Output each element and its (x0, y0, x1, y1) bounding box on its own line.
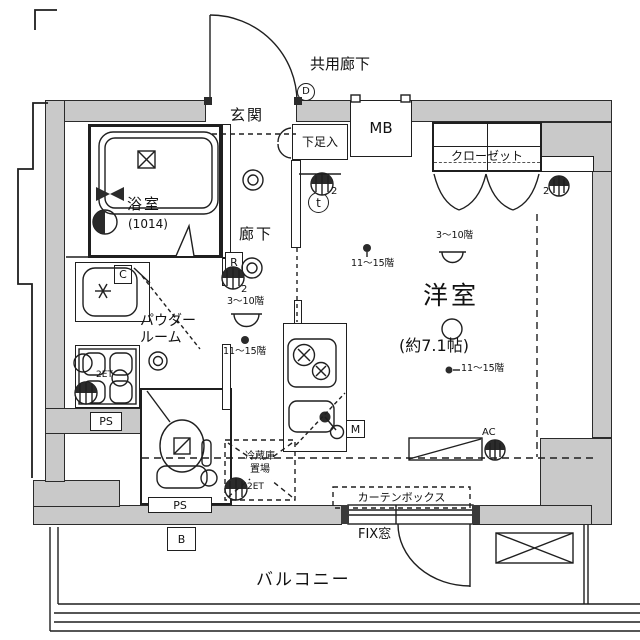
vanity-counter (75, 262, 150, 322)
label-entrance: 玄関 (230, 108, 264, 123)
doorbell-d-mark: D (297, 83, 315, 101)
anno-outlet2-hall: 2 (241, 285, 247, 295)
shoe-cabinet-door-arcs (278, 128, 291, 158)
wall-closet-right (540, 156, 594, 172)
anno-hall-floors-lower: 11〜15階 (223, 347, 266, 357)
label-fridge-2: 置場 (225, 465, 295, 475)
label-balcony: バルコニー (256, 572, 351, 589)
light-dot-hall (241, 336, 249, 344)
entrance-downlight (243, 170, 263, 190)
ac-unit-mark (409, 438, 482, 460)
label-ac: AC (482, 428, 496, 438)
pipe-space-left: PS (90, 412, 122, 431)
light-dot-room-left (363, 244, 371, 257)
label-powder-2: ルーム (140, 331, 182, 345)
label-bathroom-size: (1014) (128, 218, 168, 230)
wall-lamp-hall-icon (231, 314, 262, 327)
label-fridge-1: 冷蔵庫 (225, 452, 295, 462)
hall-downlight (242, 258, 262, 278)
fix-window-frame (341, 505, 480, 524)
exterior-outline (18, 103, 48, 478)
anno-room-floors-left: 11〜15階 (351, 259, 394, 269)
wall-chunk-bottom-left (33, 480, 120, 507)
label-curtain-box: カーテンボックス (333, 492, 470, 503)
floor-plan: クローゼット MB 下足入 R C M PS PS B D t (0, 0, 640, 640)
symbol-c-box: C (114, 265, 132, 284)
label-powder-1: パウダー (140, 314, 196, 328)
entrance-door-swing (204, 15, 302, 105)
label-fix-window: FIX窓 (358, 528, 391, 541)
closet-door-arcs (434, 174, 539, 210)
wall-bottom-right (473, 505, 592, 525)
symbol-b-box: B (167, 527, 196, 551)
meter-box: MB (350, 100, 412, 157)
balcony-door-swing (398, 524, 470, 587)
kitchen-counter (283, 323, 347, 452)
wall-genkan-room (291, 160, 301, 248)
exterior-corner-mark (35, 10, 57, 30)
symbol-r-box: R (225, 252, 243, 272)
closet-label: クローゼット (434, 150, 540, 162)
anno-hall-floors-upper: 3〜10階 (227, 297, 264, 307)
symbol-m-box: M (346, 420, 365, 438)
shoe-cabinet: 下足入 (292, 124, 348, 160)
label-hallway: 廊下 (239, 227, 273, 242)
pipe-space-bottom: PS (148, 497, 212, 513)
wall-top-left (48, 100, 206, 122)
anno-outlet2-entrance: 2 (331, 187, 337, 197)
label-common-corridor: 共用廊下 (310, 57, 370, 72)
closet-divider (487, 124, 488, 170)
tv-terminal-mark: t (308, 192, 329, 213)
anno-outlet2-closet: 2 (543, 187, 549, 197)
outlet-icon-closet (549, 176, 569, 196)
anno-room-floors-lower: 11〜15階 (461, 364, 504, 374)
label-main-room-size: (約7.1帖) (399, 338, 469, 354)
toilet-room (140, 388, 232, 505)
wall-lamp-room-icon (439, 252, 466, 263)
anno-2et-washer: 2ET (96, 371, 113, 380)
label-main-room: 洋室 (423, 283, 479, 308)
bathroom-room (88, 124, 222, 258)
wall-top-right (296, 100, 612, 122)
wall-bath-hall (222, 124, 231, 258)
wall-kitchen-stub (294, 300, 302, 324)
label-bathroom: 浴室 (127, 197, 161, 212)
outdoor-unit-space (496, 533, 573, 563)
light-dot-room-bottom (446, 367, 461, 374)
powder-downlight (149, 352, 167, 370)
anno-room-floors-upper: 3〜10階 (436, 231, 473, 241)
anno-2et-fridge: 2ET (247, 483, 264, 492)
outlet-icon-ac (485, 440, 505, 460)
closet-box: クローゼット (432, 122, 542, 172)
